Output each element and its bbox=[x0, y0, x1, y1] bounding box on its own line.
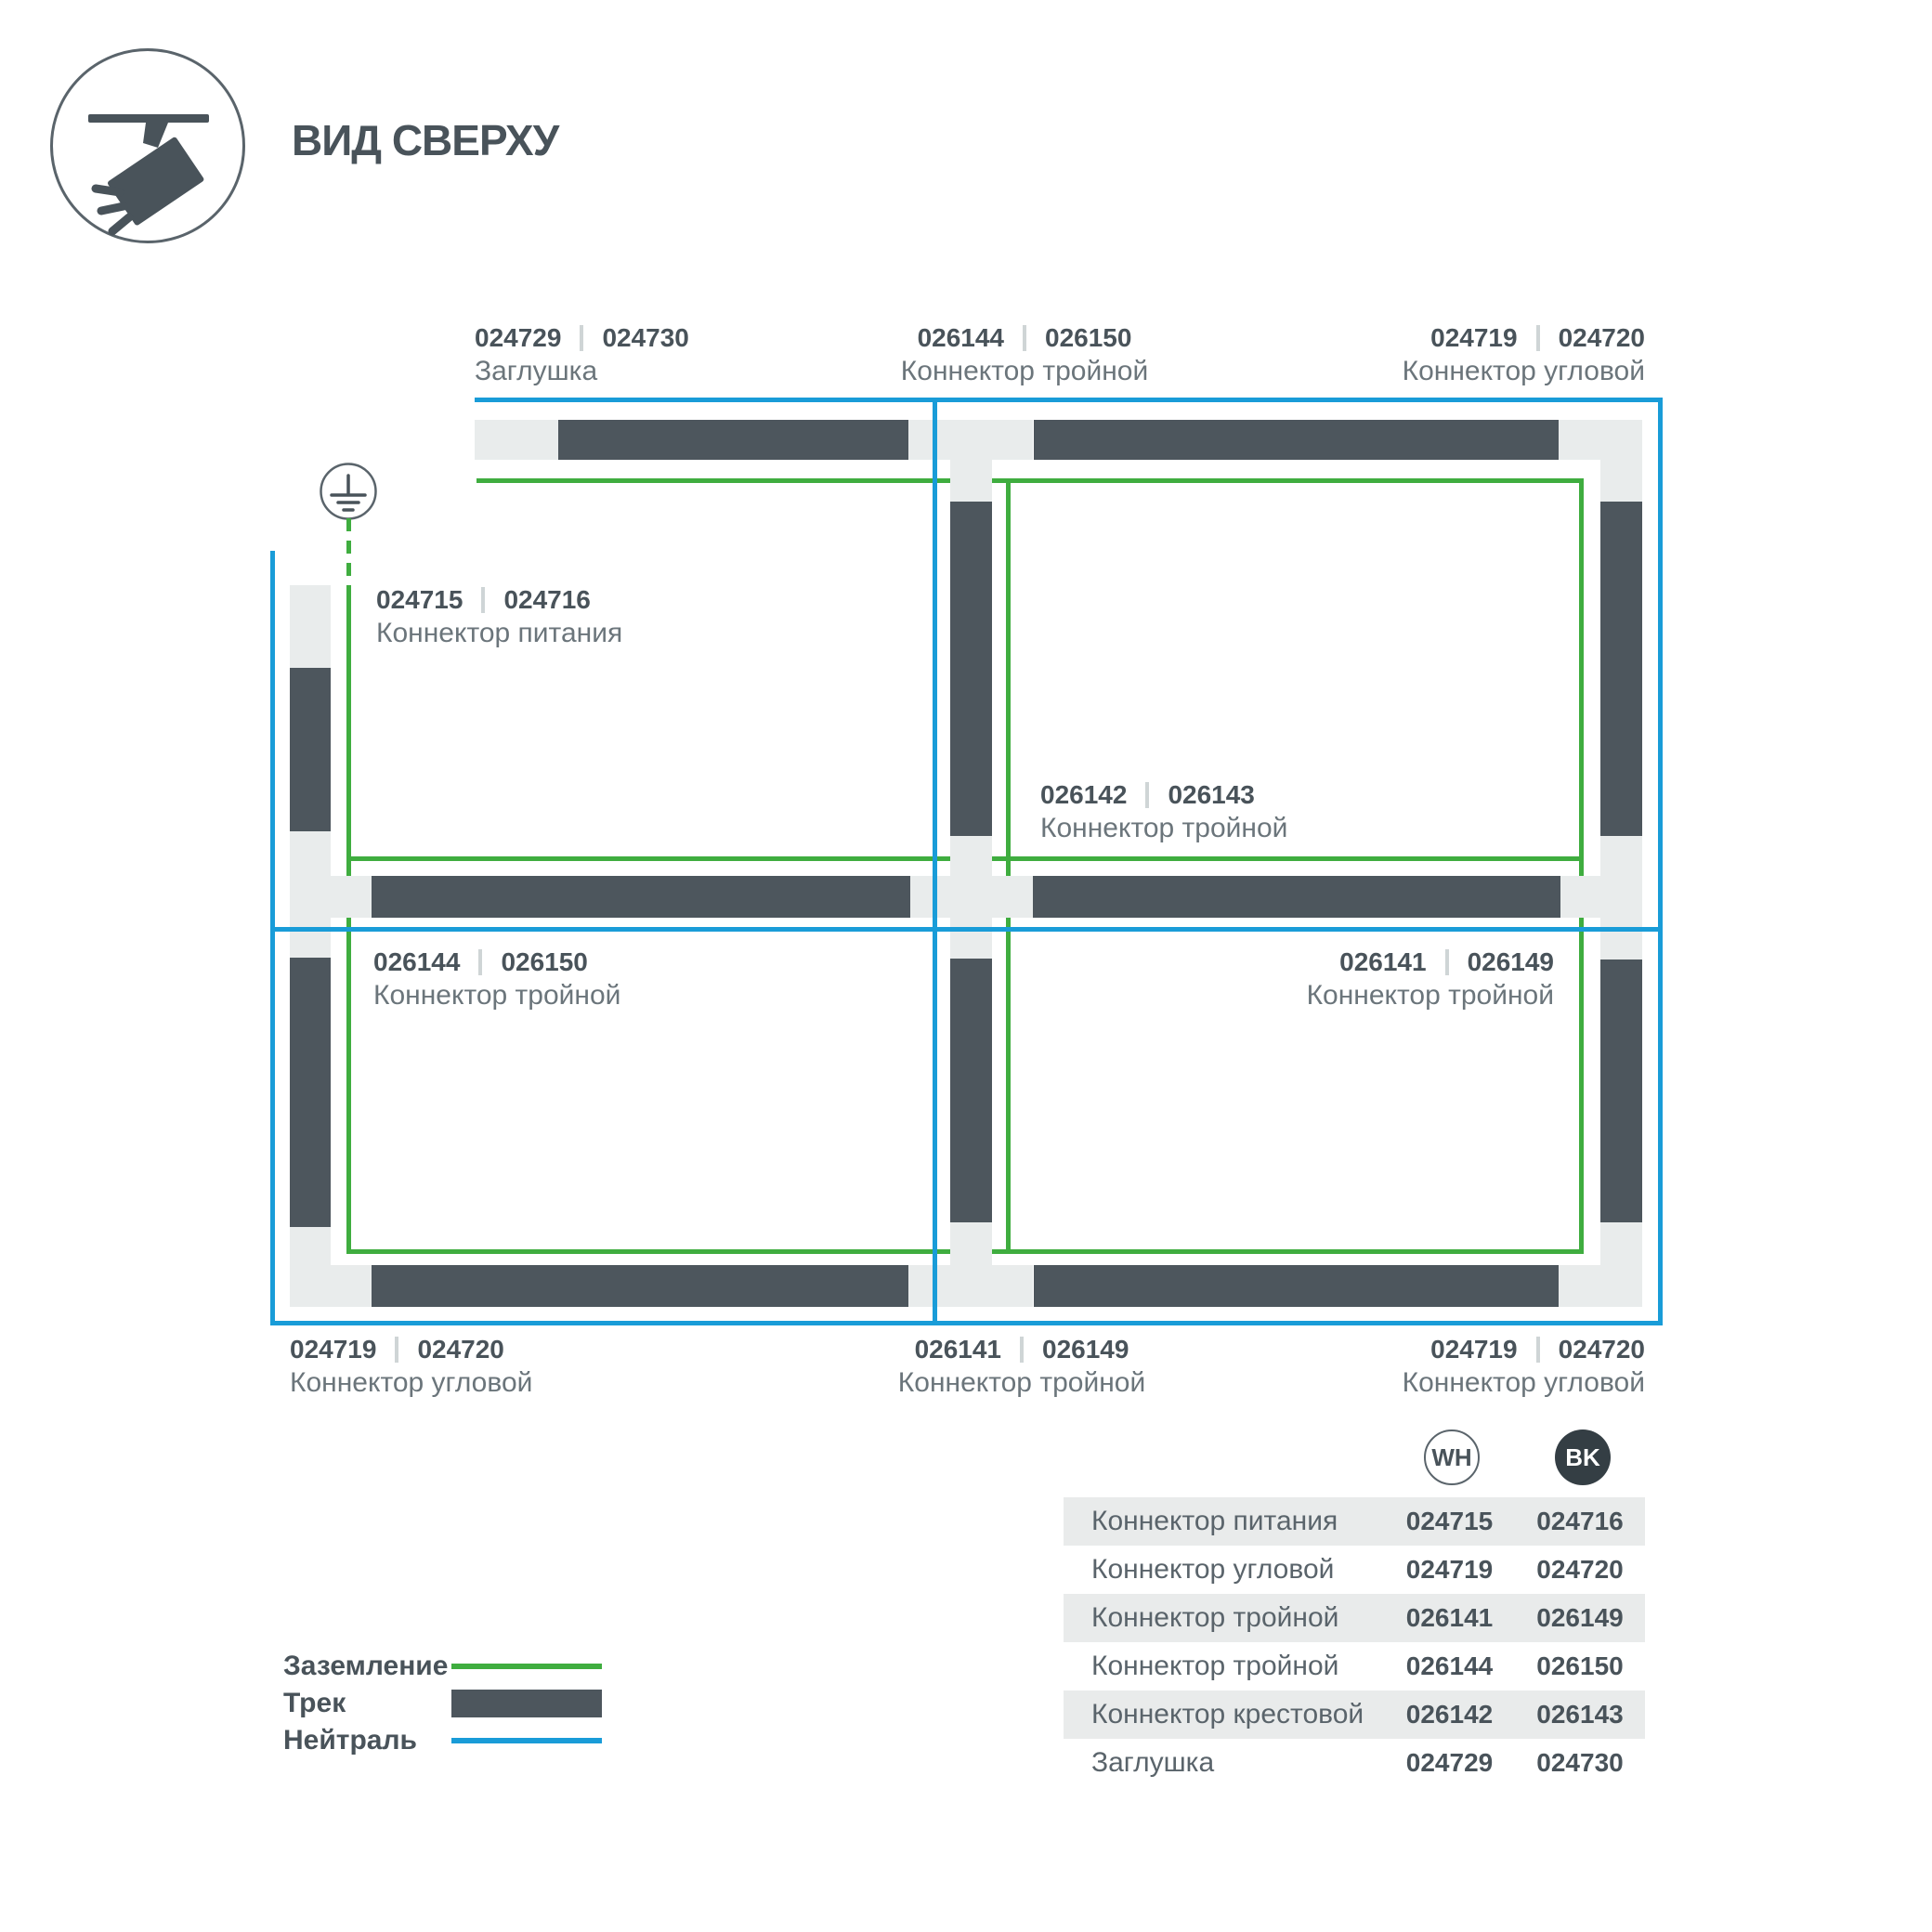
track-segment bbox=[950, 959, 992, 1222]
code-divider bbox=[1145, 782, 1149, 808]
legend-item-track: Трек bbox=[283, 1685, 673, 1722]
figure-canvas: ВИД СВЕРХУ 024729024730 Заглушка 0261440… bbox=[0, 0, 1932, 1932]
part-codes: 026141026149 bbox=[836, 1335, 1207, 1364]
label-end-cap-top: 024729024730 Заглушка bbox=[475, 323, 689, 387]
table-row: Заглушка 024729 024730 bbox=[1064, 1739, 1645, 1787]
corner-connector bbox=[1600, 460, 1642, 503]
header-icon-circle bbox=[50, 48, 245, 243]
track-segment bbox=[950, 502, 992, 836]
label-corner-connector-bottom-right: 024719024720 Коннектор угловой bbox=[1403, 1335, 1645, 1399]
table-row: Коннектор питания 024715 024716 bbox=[1064, 1497, 1645, 1546]
corner-connector bbox=[290, 1227, 331, 1269]
legend-label: Нейтраль bbox=[283, 1725, 451, 1756]
end-cap bbox=[475, 420, 558, 460]
track-segment bbox=[372, 876, 910, 918]
part-codes: 024719024720 bbox=[1403, 1335, 1645, 1364]
code-divider bbox=[1020, 1337, 1024, 1363]
part-name-cell: Коннектор тройной bbox=[1064, 1602, 1384, 1634]
code-divider bbox=[1023, 325, 1026, 351]
track-segment bbox=[1600, 959, 1642, 1222]
neutral-wire bbox=[933, 398, 937, 1325]
neutral-wire bbox=[1658, 398, 1663, 1325]
bk-code-cell: 024720 bbox=[1515, 1555, 1645, 1585]
neutral-wire bbox=[270, 1321, 1663, 1325]
triple-connector bbox=[950, 1222, 992, 1265]
neutral-wire bbox=[270, 551, 275, 1325]
label-power-connector: 024715024716 Коннектор питания bbox=[376, 585, 622, 649]
triple-connector bbox=[290, 831, 331, 958]
part-codes: 024719024720 bbox=[290, 1335, 532, 1364]
code-divider bbox=[580, 325, 583, 351]
part-name-cell: Коннектор крестовой bbox=[1064, 1699, 1384, 1730]
ground-wire bbox=[346, 593, 351, 1254]
part-name: Коннектор угловой bbox=[1403, 1367, 1645, 1399]
part-codes: 026144026150 bbox=[373, 947, 620, 977]
part-name: Коннектор тройной bbox=[373, 980, 620, 1012]
bk-code-cell: 026143 bbox=[1515, 1700, 1645, 1730]
part-name: Заглушка bbox=[475, 356, 689, 387]
neutral-wire bbox=[475, 398, 1663, 402]
label-cross-connector-center: 026142026143 Коннектор тройной bbox=[1040, 780, 1287, 844]
track-segment bbox=[1033, 876, 1560, 918]
code-divider bbox=[1445, 949, 1449, 975]
corner-connector bbox=[290, 1265, 372, 1307]
track-segment bbox=[1600, 502, 1642, 836]
earth-ground-icon bbox=[319, 462, 378, 521]
ground-wire bbox=[1579, 478, 1584, 1254]
power-connector bbox=[290, 585, 331, 668]
corner-connector bbox=[1600, 1222, 1642, 1265]
triple-connector bbox=[908, 1265, 1033, 1307]
table-row: Коннектор угловой 024719 024720 bbox=[1064, 1546, 1645, 1594]
code-divider bbox=[1536, 1337, 1540, 1363]
label-triple-connector-bottom: 026141026149 Коннектор тройной bbox=[836, 1335, 1207, 1399]
part-name-cell: Коннектор тройной bbox=[1064, 1651, 1384, 1682]
code-divider bbox=[478, 949, 482, 975]
track-segment bbox=[1034, 420, 1559, 460]
label-triple-connector-top: 026144026150 Коннектор тройной bbox=[839, 323, 1210, 387]
part-name: Коннектор угловой bbox=[290, 1367, 532, 1399]
bk-code-cell: 024716 bbox=[1515, 1507, 1645, 1536]
part-name: Коннектор тройной bbox=[839, 356, 1210, 387]
table-row: Коннектор тройной 026141 026149 bbox=[1064, 1594, 1645, 1642]
legend-item-neutral: Нейтраль bbox=[283, 1722, 673, 1759]
legend-item-ground: Заземление bbox=[283, 1648, 673, 1685]
triple-connector bbox=[1560, 876, 1602, 918]
table-row: Коннектор тройной 026144 026150 bbox=[1064, 1642, 1645, 1690]
track-segment bbox=[372, 1265, 908, 1307]
label-triple-connector-mid-left: 026144026150 Коннектор тройной bbox=[373, 947, 620, 1012]
triple-connector bbox=[331, 876, 372, 918]
corner-connector bbox=[1559, 420, 1642, 460]
track-segment bbox=[290, 668, 331, 831]
wh-color-badge: WH bbox=[1424, 1429, 1480, 1485]
part-codes: 026141026149 bbox=[1307, 947, 1554, 977]
wh-code-cell: 024719 bbox=[1384, 1555, 1515, 1585]
wh-code-cell: 026141 bbox=[1384, 1603, 1515, 1633]
part-name: Коннектор тройной bbox=[836, 1367, 1207, 1399]
ground-wire-dashed bbox=[346, 518, 351, 593]
triple-connector bbox=[908, 420, 1033, 460]
triple-connector bbox=[950, 460, 992, 503]
part-name: Коннектор угловой bbox=[1403, 356, 1645, 387]
part-codes: 026144026150 bbox=[839, 323, 1210, 353]
legend-label: Заземление bbox=[283, 1651, 451, 1682]
table-row: Коннектор крестовой 026142 026143 bbox=[1064, 1690, 1645, 1739]
track-bar-swatch bbox=[451, 1690, 602, 1717]
part-codes: 024719024720 bbox=[1403, 323, 1645, 353]
track-segment bbox=[1034, 1265, 1559, 1307]
track-spotlight-icon bbox=[53, 51, 242, 241]
cross-connector bbox=[950, 836, 992, 959]
code-divider bbox=[395, 1337, 398, 1363]
part-name-cell: Коннектор угловой bbox=[1064, 1554, 1384, 1586]
track-segment bbox=[558, 420, 908, 460]
wh-code-cell: 024729 bbox=[1384, 1748, 1515, 1778]
wh-code-cell: 024715 bbox=[1384, 1507, 1515, 1536]
label-corner-connector-bottom-left: 024719024720 Коннектор угловой bbox=[290, 1335, 532, 1399]
corner-connector bbox=[1559, 1265, 1642, 1307]
part-codes: 024729024730 bbox=[475, 323, 689, 353]
wh-code-cell: 026144 bbox=[1384, 1651, 1515, 1681]
code-divider bbox=[1536, 325, 1540, 351]
part-name: Коннектор тройной bbox=[1307, 980, 1554, 1012]
legend-label: Трек bbox=[283, 1688, 451, 1719]
bk-color-badge: BK bbox=[1555, 1429, 1611, 1485]
bk-code-cell: 024730 bbox=[1515, 1748, 1645, 1778]
ground-wire bbox=[1006, 478, 1011, 1254]
neutral-wire bbox=[270, 927, 1663, 932]
label-corner-connector-top-right: 024719024720 Коннектор угловой bbox=[1403, 323, 1645, 387]
wh-code-cell: 026142 bbox=[1384, 1700, 1515, 1730]
part-name-cell: Коннектор питания bbox=[1064, 1506, 1384, 1537]
part-name: Коннектор питания bbox=[376, 618, 622, 649]
green-line-swatch bbox=[451, 1664, 602, 1669]
page-title: ВИД СВЕРХУ bbox=[292, 115, 558, 165]
part-name: Коннектор тройной bbox=[1040, 813, 1287, 844]
parts-table: WH BK Коннектор питания 024715 024716 Ко… bbox=[1064, 1429, 1645, 1787]
part-codes: 026142026143 bbox=[1040, 780, 1287, 810]
triple-connector bbox=[1600, 836, 1642, 959]
legend: Заземление Трек Нейтраль bbox=[283, 1648, 673, 1759]
track-segment bbox=[290, 958, 331, 1227]
part-codes: 024715024716 bbox=[376, 585, 622, 615]
part-name-cell: Заглушка bbox=[1064, 1747, 1384, 1779]
blue-line-swatch bbox=[451, 1738, 602, 1743]
ground-wire bbox=[476, 478, 1584, 483]
code-divider bbox=[481, 587, 485, 613]
label-triple-connector-mid-right: 026141026149 Коннектор тройной bbox=[1307, 947, 1554, 1012]
bk-code-cell: 026149 bbox=[1515, 1603, 1645, 1633]
color-badges: WH BK bbox=[1064, 1429, 1645, 1497]
bk-code-cell: 026150 bbox=[1515, 1651, 1645, 1681]
